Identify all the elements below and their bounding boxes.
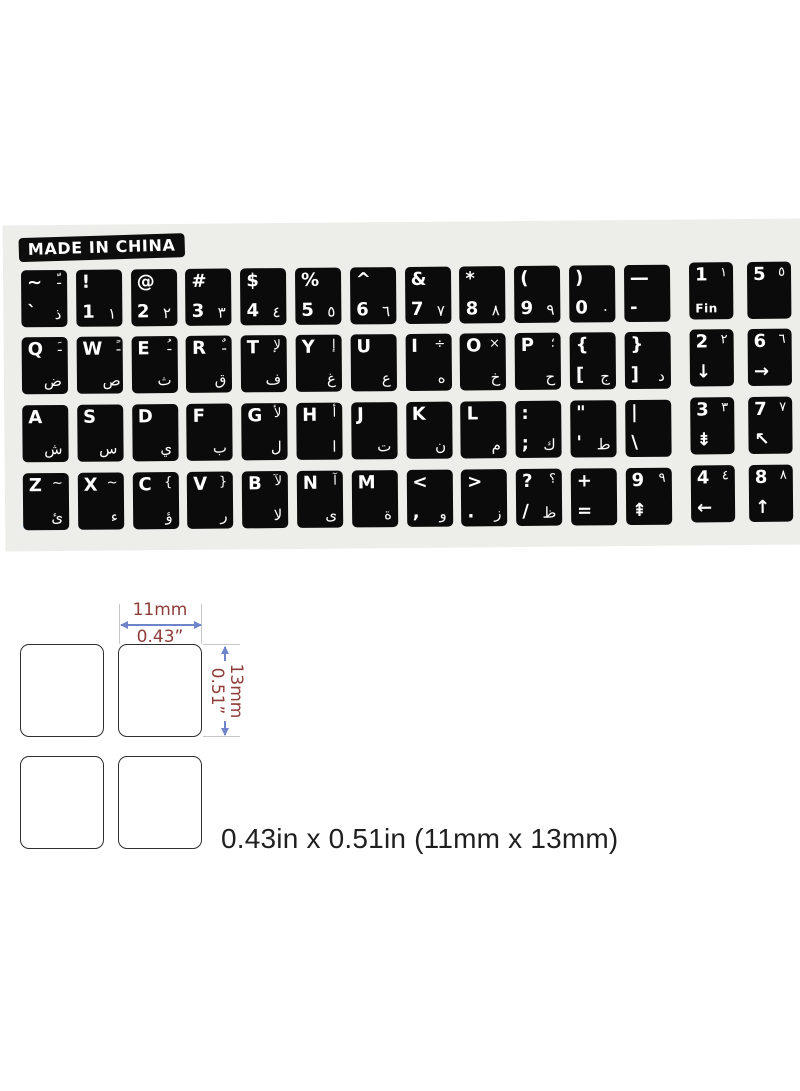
key-glyph-tl: Z: [29, 477, 42, 495]
key-glyph-tr: ـً: [117, 340, 121, 353]
key-glyph-tl: A: [28, 409, 42, 427]
key-glyph-tl: O: [466, 337, 481, 355]
key-sticker: Nآى: [297, 471, 343, 528]
key-sticker: Eـُث: [131, 336, 177, 393]
key-sticker: Lم: [461, 401, 507, 458]
key-glyph-tl: V: [193, 476, 207, 494]
key-glyph-tr: لآ: [275, 475, 283, 488]
key-glyph-br: ٤: [272, 305, 280, 320]
key-glyph-tl: $: [246, 272, 259, 290]
key-glyph-bl: ↑: [755, 499, 770, 517]
key-glyph-tl: 8: [755, 469, 768, 487]
key-glyph-tl: L: [467, 405, 479, 423]
key-glyph-tl: Q: [28, 341, 43, 359]
blank-sticker-sample: [118, 756, 202, 849]
key-glyph-tl: E: [137, 340, 149, 358]
key-glyph-bl: 0: [575, 299, 588, 317]
key-glyph-br: ز: [494, 506, 501, 521]
key-sticker: Z~ئ: [23, 473, 69, 530]
height-arrow-bottom: [224, 721, 226, 735]
key-sticker: 6٦→: [748, 329, 792, 386]
key-glyph-tr: ٢: [721, 333, 728, 346]
key-sticker: |\: [625, 400, 671, 457]
key-glyph-tl: ~: [27, 274, 42, 292]
key-glyph-tl: &: [411, 271, 427, 289]
key-glyph-tl: :: [521, 405, 528, 423]
key-glyph-br: ك: [543, 438, 556, 453]
key-glyph-tl: 5: [753, 266, 766, 284]
key-glyph-br: ا: [332, 440, 336, 455]
key-glyph-bl: ]: [631, 366, 639, 384]
key-sticker: 8٨↑: [749, 465, 793, 522]
key-sticker: 2٢↓: [690, 329, 734, 386]
key-glyph-br: ٨: [492, 303, 500, 318]
key-glyph-tl: H: [302, 407, 317, 425]
key-glyph-bl: →: [754, 363, 769, 381]
key-glyph-bl: ': [576, 434, 582, 452]
key-glyph-bl: ⇞: [632, 502, 647, 520]
key-glyph-tl: *: [465, 270, 475, 288]
key-glyph-tr: ~: [52, 477, 63, 490]
key-sticker: {[ج: [570, 332, 616, 389]
key-glyph-tl: F: [193, 408, 205, 426]
key-sticker: —-: [624, 265, 670, 322]
key-glyph-tl: C: [138, 476, 151, 494]
key-glyph-bl: 5: [301, 302, 314, 320]
key-glyph-tl: (: [520, 270, 528, 288]
key-glyph-tr: أ: [333, 407, 337, 420]
key-glyph-tr: ٨: [780, 469, 787, 482]
key-glyph-bl: Fin: [695, 302, 717, 314]
key-sticker: :;ك: [515, 401, 561, 458]
key-sticker: Jت: [351, 402, 397, 459]
key-glyph-tl: ^: [356, 271, 371, 289]
key-glyph-tr: ٣: [721, 401, 728, 414]
key-sticker: }]د: [624, 332, 670, 389]
key-glyph-tl: G: [247, 407, 262, 425]
key-glyph-tl: X: [84, 477, 98, 495]
key-sticker: >.ز: [461, 469, 507, 526]
key-sticker: 1١Fin: [689, 262, 733, 319]
key-glyph-bl: ↖: [754, 431, 769, 449]
key-glyph-br: ه: [438, 371, 446, 386]
key-sticker: Sس: [77, 404, 123, 461]
key-glyph-br: ب: [213, 441, 227, 456]
key-glyph-bl: 2: [137, 303, 150, 321]
key-sticker: +=: [571, 468, 617, 525]
key-glyph-br: ح: [545, 370, 555, 385]
key-sticker: P؛ح: [515, 333, 561, 390]
key-sticker: I÷ه: [405, 334, 451, 391]
key-sticker: Kن: [406, 402, 452, 459]
key-sticker: "'ط: [570, 400, 616, 457]
width-inch-label: 0.43”: [137, 628, 184, 647]
key-sticker: Mة: [352, 470, 398, 527]
key-sticker: V}ر: [187, 471, 233, 528]
key-sticker: !1١: [76, 269, 122, 326]
key-sticker: 4٤←: [691, 465, 735, 522]
key-sticker: $4٤: [240, 268, 286, 325]
key-glyph-br: ث: [157, 373, 171, 388]
key-sticker: Qـَض: [22, 337, 68, 394]
key-glyph-tl: T: [247, 339, 259, 357]
made-in-china-label: MADE IN CHINA: [18, 233, 184, 262]
extension-line: [203, 736, 240, 737]
key-glyph-br: ل: [271, 440, 282, 455]
key-glyph-tr: ـٌ: [222, 340, 226, 353]
key-glyph-br: ١: [108, 307, 116, 322]
key-glyph-bl: 3: [192, 303, 205, 321]
sticker-sheet: MADE IN CHINA ~ـّ`ذ!1١@2٢#3٣$4٤%5٥^6٦&7٧…: [3, 219, 800, 552]
key-glyph-tr: ٦: [779, 333, 786, 346]
key-glyph-tl: J: [357, 406, 364, 424]
width-arrow: [121, 624, 201, 626]
key-glyph-tl: W: [82, 341, 102, 359]
key-glyph-tl: M: [358, 474, 376, 492]
key-glyph-tr: ~: [107, 477, 118, 490]
key-glyph-tl: ?: [522, 473, 533, 491]
key-glyph-tr: ـُ: [167, 340, 171, 353]
key-glyph-bl: \: [631, 434, 638, 452]
key-glyph-tr: ؟: [549, 473, 556, 486]
key-sticker: (9٩: [514, 266, 560, 323]
key-sticker: Dي: [132, 404, 178, 461]
key-glyph-tl: 6: [754, 333, 767, 351]
key-sticker: Rـٌق: [186, 335, 232, 392]
key-glyph-tl: 7: [754, 401, 767, 419]
size-caption: 0.43in x 0.51in (11mm x 13mm): [221, 823, 618, 855]
key-glyph-tl: 1: [695, 266, 708, 284]
key-glyph-tl: 2: [696, 333, 709, 351]
key-glyph-br: ئ: [51, 510, 63, 525]
key-glyph-tl: #: [191, 273, 206, 291]
key-glyph-tr: ٤: [722, 469, 729, 482]
key-glyph-br: ق: [215, 373, 227, 388]
key-glyph-tl: R: [192, 340, 206, 358]
key-glyph-br: ٧: [437, 304, 445, 319]
key-sticker: #3٣: [185, 269, 231, 326]
height-inch-label: 0.51”: [207, 659, 226, 723]
key-sticker: Yإغ: [296, 335, 342, 392]
height-mm-label: 13mm: [226, 659, 245, 723]
key-glyph-tr: ـَ: [58, 341, 62, 354]
key-sticker: *8٨: [459, 266, 505, 323]
key-sticker: 5٥: [747, 262, 791, 319]
key-sticker: &7٧: [405, 267, 451, 324]
key-glyph-br: س: [99, 442, 117, 457]
key-sticker: @2٢: [131, 269, 177, 326]
key-glyph-br: ص: [103, 373, 121, 388]
key-glyph-bl: -: [630, 299, 638, 317]
key-glyph-tl: !: [82, 274, 90, 292]
key-glyph-br: ت: [377, 439, 391, 454]
key-glyph-tl: %: [301, 272, 319, 290]
key-glyph-tl: D: [138, 408, 153, 426]
key-glyph-tl: |: [631, 404, 638, 422]
blank-sticker-sample-measured: [118, 644, 202, 737]
blank-sticker-sample: [20, 756, 104, 849]
key-sticker: C{ؤ: [132, 472, 178, 529]
key-glyph-br: ى: [325, 508, 337, 523]
key-glyph-tl: 3: [696, 401, 709, 419]
key-sticker: Fب: [187, 403, 233, 460]
key-glyph-bl: ;: [522, 435, 529, 453]
key-glyph-bl: [: [576, 366, 584, 384]
key-glyph-bl: ↓: [696, 363, 711, 381]
key-glyph-br: ذ: [55, 307, 62, 322]
key-sticker: X~ء: [78, 472, 124, 529]
key-glyph-br: ة: [384, 507, 392, 522]
key-glyph-tr: لإ: [273, 339, 281, 352]
key-glyph-tr: ـّ: [57, 274, 61, 287]
key-glyph-br: ٣: [218, 306, 226, 321]
key-sticker: ?؟/ظ: [516, 469, 562, 526]
key-glyph-tl: <: [412, 474, 427, 492]
key-glyph-br: ر: [220, 509, 227, 524]
key-glyph-br: ء: [111, 510, 118, 525]
key-sticker: Bلآلا: [242, 471, 288, 528]
key-sticker: 3٣⇟: [690, 397, 734, 454]
key-glyph-tl: ): [575, 269, 583, 287]
key-sticker: Wـًص: [76, 336, 122, 393]
key-glyph-tl: P: [521, 337, 534, 355]
key-glyph-br: م: [492, 438, 501, 453]
key-glyph-bl: =: [577, 502, 592, 520]
key-glyph-tl: >: [467, 473, 482, 491]
key-glyph-tr: ٥: [778, 266, 785, 279]
key-glyph-br: ٢: [163, 306, 171, 321]
key-glyph-br: ن: [435, 439, 446, 454]
key-glyph-br: ي: [160, 441, 172, 456]
key-glyph-bl: 1: [82, 304, 95, 322]
key-glyph-br: ٠: [601, 302, 609, 317]
key-glyph-tl: {: [576, 336, 589, 354]
key-sticker: O×خ: [460, 333, 506, 390]
key-glyph-br: ظ: [542, 506, 556, 521]
key-glyph-bl: 9: [520, 300, 533, 318]
key-glyph-tr: إ: [332, 339, 336, 352]
width-mm-label: 11mm: [133, 601, 188, 620]
key-sticker: )0٠: [569, 265, 615, 322]
key-glyph-br: ع: [382, 371, 391, 386]
key-sticker: Hأا: [296, 403, 342, 460]
key-glyph-tl: }: [630, 336, 643, 354]
key-glyph-tr: ١: [720, 266, 727, 279]
key-glyph-bl: .: [467, 503, 474, 521]
key-glyph-tl: N: [303, 475, 318, 493]
key-sticker: Uع: [350, 334, 396, 391]
key-glyph-tr: ؛: [551, 337, 555, 350]
key-glyph-br: غ: [327, 372, 336, 387]
key-glyph-tl: 4: [697, 469, 710, 487]
extension-line: [203, 644, 240, 645]
key-glyph-br: لا: [274, 508, 283, 523]
key-glyph-bl: 6: [356, 301, 369, 319]
key-glyph-tl: ": [576, 404, 586, 422]
key-sticker: Tلإف: [241, 335, 287, 392]
key-glyph-tl: 9: [632, 472, 645, 490]
key-glyph-tl: —: [630, 269, 648, 288]
key-sticker: ^6٦: [350, 267, 396, 324]
key-sticker: ~ـّ`ذ: [21, 270, 67, 327]
key-sticker: <,و: [406, 470, 452, 527]
key-glyph-br: و: [439, 507, 446, 522]
key-glyph-bl: 7: [411, 301, 424, 319]
key-glyph-bl: ←: [697, 499, 712, 517]
key-glyph-tr: لأ: [274, 407, 282, 420]
key-glyph-tr: ×: [489, 337, 500, 350]
blank-sticker-sample: [20, 644, 104, 737]
key-glyph-bl: `: [27, 304, 36, 322]
key-glyph-br: ؤ: [165, 509, 172, 524]
key-glyph-br: ٦: [382, 304, 390, 319]
key-glyph-br: ض: [44, 374, 62, 389]
key-glyph-bl: ,: [413, 504, 420, 522]
key-glyph-tr: ٧: [779, 401, 786, 414]
key-sticker: 9٩⇞: [626, 468, 672, 525]
key-glyph-tr: }: [219, 476, 227, 489]
height-label: 13mm 0.51”: [207, 659, 245, 723]
key-glyph-br: ش: [44, 442, 62, 457]
key-glyph-tl: +: [577, 472, 592, 490]
key-glyph-bl: 8: [466, 300, 479, 318]
key-glyph-bl: /: [522, 503, 529, 521]
key-sticker: %5٥: [295, 268, 341, 325]
key-glyph-br: ٩: [546, 303, 554, 318]
key-glyph-tl: Y: [302, 339, 315, 357]
key-glyph-br: ط: [597, 437, 611, 452]
key-glyph-tl: K: [412, 406, 426, 424]
key-glyph-tr: ÷: [434, 338, 445, 351]
key-sticker: Gلأل: [241, 403, 287, 460]
key-glyph-br: ف: [266, 372, 282, 387]
key-sticker: Aش: [22, 405, 68, 462]
key-glyph-tr: آ: [333, 475, 337, 488]
key-glyph-tl: S: [83, 409, 96, 427]
key-glyph-br: خ: [491, 370, 501, 385]
key-glyph-tl: U: [356, 338, 371, 356]
key-glyph-tl: @: [137, 273, 155, 291]
key-glyph-br: د: [658, 369, 665, 384]
key-glyph-tr: {: [164, 476, 172, 489]
key-sticker: 7٧↖: [748, 397, 792, 454]
key-glyph-tr: ٩: [659, 472, 666, 485]
key-glyph-br: ٥: [327, 305, 335, 320]
key-glyph-tl: B: [248, 475, 262, 493]
key-glyph-bl: 4: [246, 302, 259, 320]
key-glyph-tl: I: [411, 338, 418, 356]
key-glyph-bl: ⇟: [696, 431, 711, 449]
product-image: MADE IN CHINA ~ـّ`ذ!1١@2٢#3٣$4٤%5٥^6٦&7٧…: [0, 0, 800, 1091]
key-glyph-br: ج: [600, 369, 610, 384]
